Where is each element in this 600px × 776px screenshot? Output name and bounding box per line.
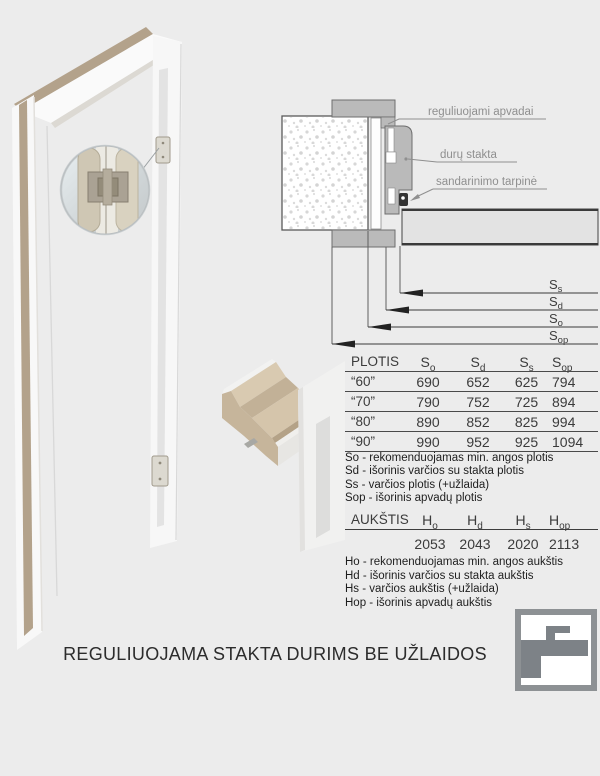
cell: 825 — [503, 413, 550, 431]
cell: 794 — [550, 373, 598, 391]
svg-text:Ss: Ss — [549, 277, 563, 295]
col-header: Sd — [453, 353, 503, 371]
hinge-icon — [152, 456, 168, 486]
logo-flag-post — [546, 626, 555, 640]
cell: 2020 — [499, 535, 547, 553]
table-row: “60” 690 652 625 794 — [345, 372, 598, 392]
hinge-icon — [156, 137, 170, 163]
cell: 690 — [403, 373, 453, 391]
door-leaf-section — [402, 209, 598, 245]
width-table-title: PLOTIS — [345, 353, 403, 371]
cell: 2043 — [451, 535, 499, 553]
cell: 725 — [503, 393, 550, 411]
col-header: Hop — [547, 511, 598, 529]
wall-section — [282, 116, 368, 230]
height-legend: Ho - rekomenduojamas min. angos aukštis … — [345, 556, 600, 610]
table-row: “80” 890 852 825 994 — [345, 412, 598, 432]
height-table-header: AUKŠTIS Ho Hd Hs Hop — [345, 504, 598, 530]
legend-line: Hs - varčios aukštis (+užlaida) — [345, 583, 600, 597]
table-row: 2053 2043 2020 2113 — [345, 530, 598, 553]
col-header: Ho — [409, 511, 451, 529]
height-table: AUKŠTIS Ho Hd Hs Hop 2053 2043 2020 2113 — [345, 504, 598, 553]
cell: 790 — [403, 393, 453, 411]
col-header: Ss — [503, 353, 550, 371]
row-label: “60” — [345, 373, 403, 391]
legend-line: Sd - išorinis varčios su stakta plotis — [345, 465, 600, 478]
frame-reveal-line — [47, 126, 57, 596]
logo-block — [521, 640, 541, 678]
legend-line: Ss - varčios plotis (+užlaida) — [345, 479, 600, 492]
cell: 990 — [403, 433, 453, 451]
width-table-header: PLOTIS So Sd Ss Sop — [345, 350, 598, 372]
row-label: “80” — [345, 413, 403, 431]
table-row: “90” 990 952 925 1094 — [345, 432, 598, 452]
row-label: “70” — [345, 393, 403, 411]
cell: 890 — [403, 413, 453, 431]
logo-flag — [555, 626, 570, 633]
width-table: PLOTIS So Sd Ss Sop “60” 690 652 625 794… — [345, 350, 598, 452]
trim-slide — [371, 118, 381, 229]
legend-line: Ho - rekomenduojamas min. angos aukštis — [345, 556, 600, 570]
height-table-title: AUKŠTIS — [345, 511, 409, 529]
brand-logo-icon — [514, 608, 598, 692]
width-legend: So - rekomenduojamas min. angos plotis S… — [345, 452, 600, 505]
cell: 752 — [453, 393, 503, 411]
cell: 952 — [453, 433, 503, 451]
svg-text:Sop: Sop — [549, 328, 568, 346]
cell: 652 — [453, 373, 503, 391]
legend-line: So - rekomenduojamas min. angos plotis — [345, 452, 600, 465]
table-row: “70” 790 752 725 894 — [345, 392, 598, 412]
label-frame: durų stakta — [440, 149, 497, 161]
col-header: Hs — [499, 511, 547, 529]
col-header: Hd — [451, 511, 499, 529]
hinge-detail-circle — [61, 140, 149, 240]
cell: 1094 — [550, 433, 598, 451]
trim-bottom — [332, 230, 395, 247]
col-header: Sop — [550, 353, 598, 371]
cell: 894 — [550, 393, 598, 411]
cell: 994 — [550, 413, 598, 431]
page-title: REGULIUOJAMA STAKTA DURIMS BE UŽLAIDOS — [60, 644, 490, 665]
cell: 925 — [503, 433, 550, 451]
door-frame — [12, 27, 182, 650]
svg-text:So: So — [549, 311, 563, 329]
cell: 625 — [503, 373, 550, 391]
col-header: So — [403, 353, 453, 371]
label-gasket: sandarinimo tarpinė — [436, 176, 537, 188]
svg-text:Sd: Sd — [549, 294, 563, 312]
cell: 2053 — [409, 535, 451, 553]
trim-top — [332, 100, 395, 117]
page: reguliuojami apvadai durų stakta sandari… — [0, 0, 600, 776]
label-trim: reguliuojami apvadai — [428, 106, 533, 118]
frame-profile-3d — [222, 359, 345, 552]
legend-line: Hd - išorinis varčios su stakta aukštis — [345, 570, 600, 584]
concealed-hinge-detail — [78, 140, 138, 240]
dimension-labels: Ss Sd So Sop — [549, 277, 568, 346]
row-label: “90” — [345, 433, 403, 451]
cross-section-diagram: reguliuojami apvadai durų stakta sandari… — [270, 85, 600, 351]
logo-bar — [533, 640, 588, 656]
cell: 852 — [453, 413, 503, 431]
cell: 2113 — [547, 535, 598, 553]
